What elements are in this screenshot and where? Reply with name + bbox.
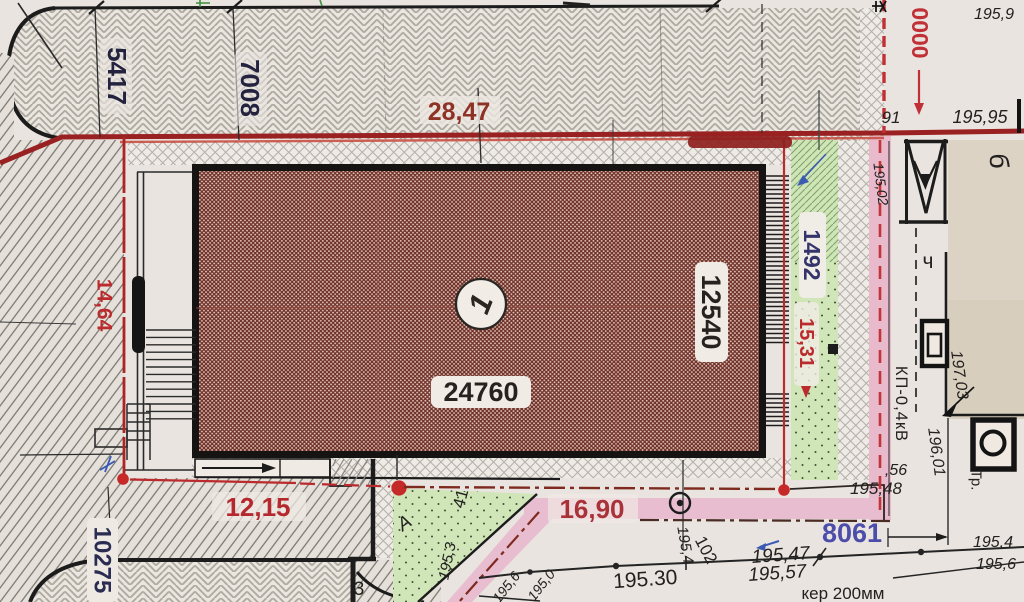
svg-text:91: 91: [882, 108, 901, 127]
svg-text:3: 3: [354, 579, 365, 600]
svg-text:14,64: 14,64: [93, 279, 116, 332]
svg-text:1492: 1492: [799, 229, 825, 280]
svg-text:195,57: 195,57: [748, 561, 809, 586]
svg-text:195.30: 195.30: [612, 566, 678, 593]
svg-text:КП-0,4кВ: КП-0,4кВ: [892, 366, 910, 442]
svg-text:,56: ,56: [885, 462, 907, 479]
svg-text:195,6: 195,6: [976, 556, 1016, 573]
svg-text:195,95: 195,95: [952, 107, 1008, 127]
svg-text:195,9: 195,9: [974, 6, 1014, 23]
svg-text:24760: 24760: [443, 377, 518, 407]
svg-text:8061: 8061: [822, 518, 882, 548]
svg-text:12,15: 12,15: [225, 492, 290, 522]
svg-text:Тр.: Тр.: [968, 470, 985, 491]
svg-text:15,31: 15,31: [795, 318, 817, 368]
svg-text:12540: 12540: [696, 274, 726, 349]
svg-text:5417: 5417: [102, 47, 132, 105]
svg-text:0000: 0000: [907, 7, 933, 58]
svg-text:195,48: 195,48: [850, 479, 903, 498]
svg-text:10275: 10275: [89, 527, 116, 594]
svg-text:195,4: 195,4: [973, 534, 1013, 551]
svg-text:16,90: 16,90: [559, 494, 624, 524]
svg-text:б: б: [984, 153, 1014, 168]
svg-text:28,47: 28,47: [428, 98, 491, 126]
svg-text:кер 200мм: кер 200мм: [802, 584, 885, 602]
svg-text:7008: 7008: [235, 59, 265, 117]
svg-text:ч: ч: [923, 250, 934, 273]
